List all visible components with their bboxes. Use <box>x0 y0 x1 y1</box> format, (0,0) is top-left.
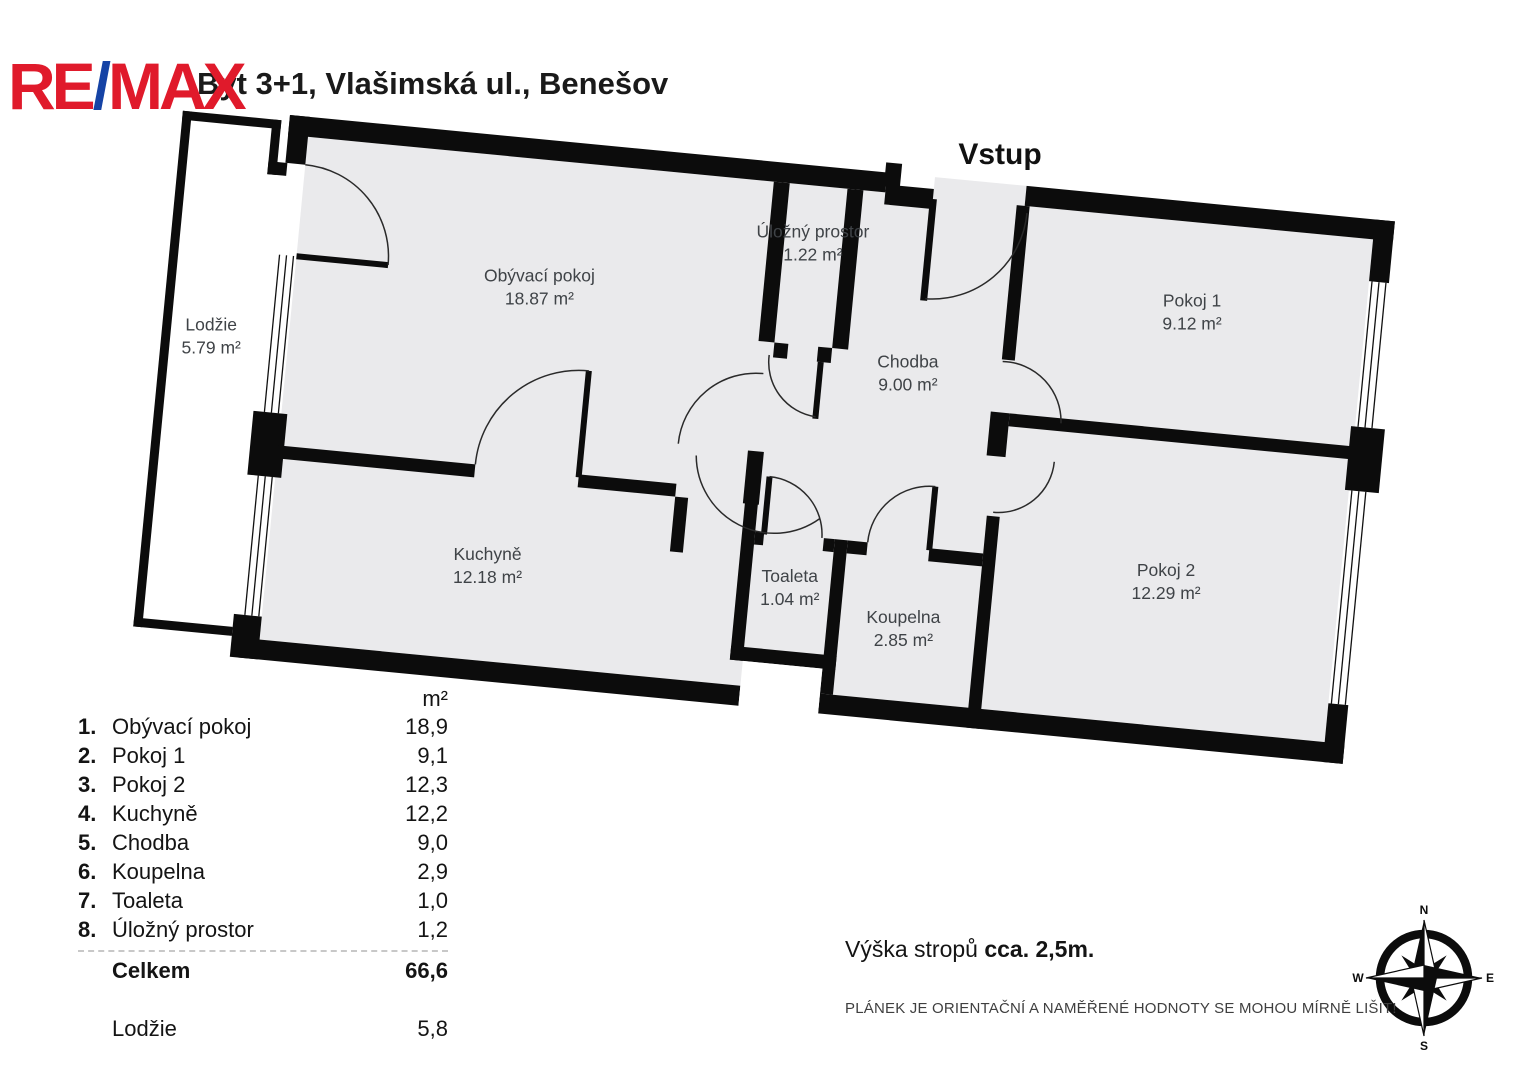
svg-text:9.00 m²: 9.00 m² <box>878 374 937 394</box>
svg-text:Pokoj 2: Pokoj 2 <box>1137 560 1195 580</box>
legend-unit: m² <box>422 686 448 712</box>
floorplan-page: Byt 3+1, Vlašimská ul., Benešov RE/MAX V… <box>0 0 1528 1080</box>
legend-row: 5. Chodba 9,0 <box>78 828 448 857</box>
logo-re: RE <box>8 49 92 123</box>
legend-balcony-row: Lodžie 5,8 <box>78 1014 448 1043</box>
svg-text:Chodba: Chodba <box>877 351 939 371</box>
compass-rose-icon: N E S W <box>1352 903 1494 1053</box>
svg-text:Obývací pokoj: Obývací pokoj <box>484 266 595 286</box>
svg-text:Koupelna: Koupelna <box>866 607 940 627</box>
area-legend: m² 1. Obývací pokoj 18,9 2. Pokoj 1 9,1 … <box>78 686 448 1043</box>
svg-text:Pokoj 1: Pokoj 1 <box>1163 290 1221 310</box>
svg-text:1.22 m²: 1.22 m² <box>783 245 842 265</box>
compass-west-label: W <box>1352 971 1364 985</box>
svg-text:12.18 m²: 12.18 m² <box>453 567 522 587</box>
entrance-label: Vstup <box>930 138 1070 172</box>
remax-logo: RE/MAX <box>8 48 243 124</box>
ceiling-height-note: Výška stropů cca. 2,5m. <box>845 936 1094 963</box>
compass-north-label: N <box>1420 903 1429 917</box>
compass-east-label: E <box>1486 971 1494 985</box>
legend-row: 8. Úložný prostor 1,2 <box>78 915 448 944</box>
svg-text:1.04 m²: 1.04 m² <box>760 589 819 609</box>
legend-row: 4. Kuchyně 12,2 <box>78 799 448 828</box>
svg-text:5.79 m²: 5.79 m² <box>182 337 241 357</box>
logo-slash-icon: / <box>92 49 108 123</box>
svg-text:Kuchyně: Kuchyně <box>453 544 521 564</box>
svg-text:Úložný prostor: Úložný prostor <box>756 221 869 242</box>
svg-text:Lodžie: Lodžie <box>185 314 237 334</box>
service-shaft-notch <box>737 661 822 726</box>
disclaimer-note: PLÁNEK JE ORIENTAČNÍ A NAMĚŘENÉ HODNOTY … <box>845 1000 1397 1017</box>
legend-row: 2. Pokoj 1 9,1 <box>78 741 448 770</box>
legend-row: 6. Koupelna 2,9 <box>78 857 448 886</box>
legend-separator <box>78 950 448 952</box>
svg-text:18.87 m²: 18.87 m² <box>505 289 574 309</box>
svg-text:2.85 m²: 2.85 m² <box>874 630 933 650</box>
page-title: Byt 3+1, Vlašimská ul., Benešov <box>197 66 668 102</box>
legend-row: 1. Obývací pokoj 18,9 <box>78 712 448 741</box>
svg-text:9.12 m²: 9.12 m² <box>1162 313 1221 333</box>
svg-text:Toaleta: Toaleta <box>762 566 819 586</box>
svg-text:12.29 m²: 12.29 m² <box>1132 583 1201 603</box>
legend-row: 3. Pokoj 2 12,3 <box>78 770 448 799</box>
logo-max: MAX <box>108 49 243 123</box>
legend-unit-header: m² <box>78 686 448 712</box>
legend-row: 7. Toaleta 1,0 <box>78 886 448 915</box>
compass-south-label: S <box>1420 1039 1428 1053</box>
legend-total-row: Celkem 66,6 <box>78 956 448 985</box>
